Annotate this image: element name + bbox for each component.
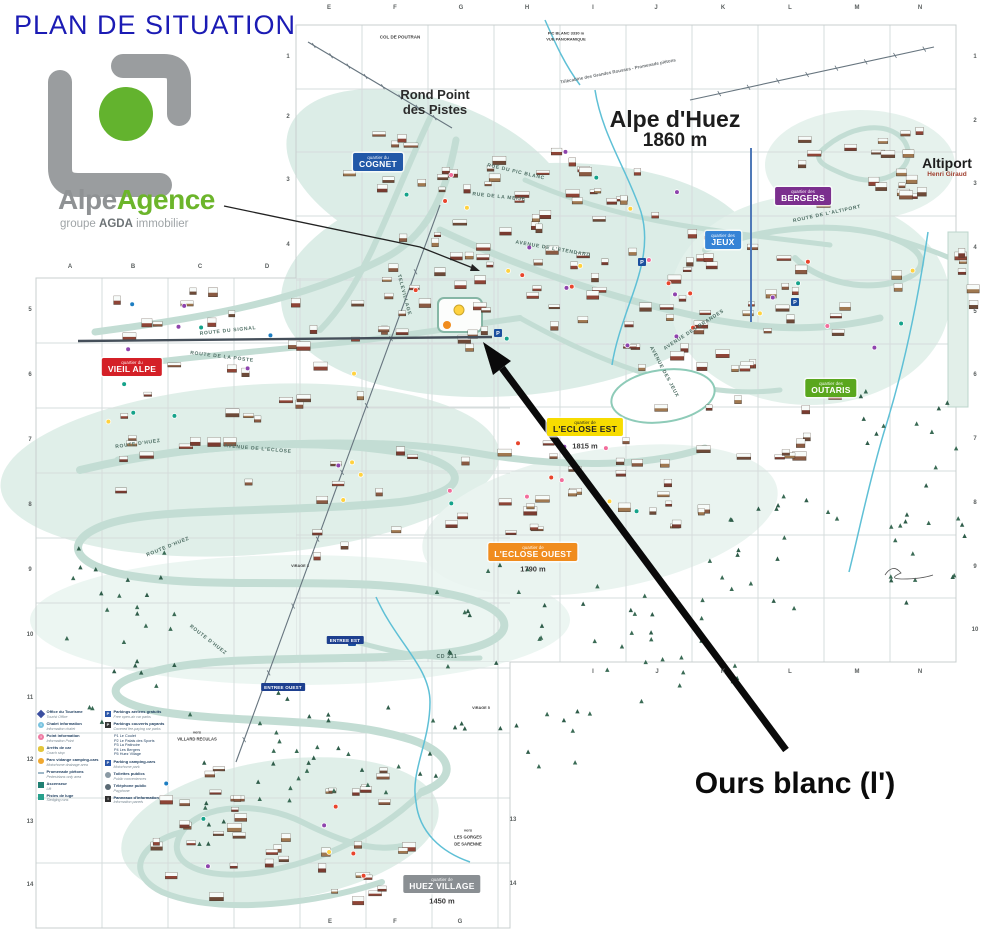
legend-column: Office du TourismeTourist OfficeiChalet …: [38, 710, 100, 808]
place-label: DE SARENNE: [454, 842, 481, 847]
place-label: VIRAGE 5: [472, 706, 490, 710]
ours-blanc-arrowhead: [483, 342, 511, 375]
legend-label-fr: Promenade piétons: [47, 770, 84, 775]
legend-item-text: AscenseurLift: [47, 782, 67, 791]
grid-label: B: [131, 264, 135, 270]
legend-item: Toilettes publicsPublic conveniences: [105, 772, 167, 781]
grid-label: F: [393, 5, 397, 11]
road-label: ROUTE D'HUEZ: [146, 536, 191, 559]
grid-label: 14: [27, 882, 34, 888]
altiport-label: Altiport Henri Giraud: [922, 158, 972, 180]
legend-item-text: Office du TourismeTourist Office: [47, 710, 83, 719]
legend-label-fr: Parc vidange camping-cars: [47, 758, 99, 763]
legend-label-fr: Parking camping-cars: [114, 760, 156, 765]
grid-label: G: [459, 5, 464, 11]
legend-label-en: Public conveniences: [114, 777, 147, 781]
legend-label-en: Information panels: [114, 800, 159, 804]
legend-label-en: Payphone: [114, 789, 147, 793]
legend-label-fr: Toilettes publics: [114, 772, 147, 777]
legend-label-en: Pedestrians only area: [47, 775, 84, 779]
road-label: RUE DE LA MEIJE: [472, 191, 526, 203]
quarter-label-vieil-alpe: quartier du VIEIL ALPE: [102, 358, 162, 376]
legend-item: Parc vidange camping-carsMotorhome drain…: [38, 758, 100, 767]
legend-item: AscenseurLift: [38, 782, 100, 791]
legend-item-text: Toilettes publicsPublic conveniences: [114, 772, 147, 781]
grid-label: N: [918, 669, 922, 675]
grid-label: M: [855, 669, 860, 675]
legend-square-icon: P: [105, 760, 111, 766]
grid-label: 8: [973, 500, 976, 506]
grid-label: I: [592, 669, 594, 675]
legend-item: iPoint informationInformation Point: [38, 734, 100, 743]
legend-square-icon: i: [105, 796, 111, 802]
legend-item-text: Pistes de lugeSledging runs: [47, 794, 74, 803]
quarter-label-eclose-est: quartier de L'ECLOSE EST: [547, 418, 623, 436]
grid-label: 9: [973, 564, 976, 570]
place-label: vers: [193, 730, 201, 735]
grid-label: E: [328, 919, 332, 925]
grid-label: 14: [510, 881, 517, 887]
grid-label: C: [198, 264, 202, 270]
grid-label: 3: [973, 181, 976, 187]
legend-item: Téléphone publicPayphone: [105, 784, 167, 793]
road-label: ROUTE DE LA POSTE: [190, 350, 254, 364]
legend-label-en: Free open-air car parks: [114, 715, 162, 719]
legend-item: PParkings aériens gratuitsFree open-air …: [105, 710, 167, 719]
grid-label: J: [654, 5, 657, 11]
road-label: ROUTE DU SIGNAL: [199, 325, 256, 337]
legend-circle-icon: i: [38, 722, 44, 728]
signature-mark: [885, 568, 933, 579]
grid-label: K: [721, 5, 725, 11]
quarter-label-cognet: quartier du COGNET: [353, 153, 403, 171]
road-label: AVENUE DE L'ECLOSE: [224, 443, 292, 455]
quarter-label-eclose-ouest: quartier de L'ECLOSE OUEST: [488, 543, 577, 561]
altitude-label-huez-village: 1450 m: [429, 897, 454, 906]
legend-square-icon: [38, 794, 44, 800]
grid-label: L: [788, 669, 792, 675]
grid-label: 4: [973, 245, 976, 251]
road-label: TELEVILLAGE: [396, 274, 413, 316]
legend-item-text: Arrêts de carCoach stop: [47, 746, 72, 755]
grid-label: 10: [972, 627, 979, 633]
road-label: RUE DU PIC BLANC: [487, 162, 546, 181]
quarter-label-huez-village: quartier de HUEZ VILLAGE: [403, 875, 480, 893]
legend-label-en: Tourist Office: [47, 715, 83, 719]
lift-cable-line: [78, 337, 492, 341]
entrance-label: ENTREE OUEST: [261, 683, 305, 691]
grid-label: 12: [27, 757, 34, 763]
place-label: VILLARD RECULAS: [177, 737, 217, 742]
road-label: ROUTE D'HUEZ: [115, 438, 161, 450]
place-label: PIC BLANC 3330 m: [548, 31, 584, 36]
legend-label-fr: Ascenseur: [47, 782, 67, 787]
grid-label: M: [855, 5, 860, 11]
map-legend: Office du TourismeTourist OfficeiChalet …: [38, 710, 167, 808]
legend-item-text: Parc vidange camping-carsMotorhome drain…: [47, 758, 99, 767]
road-label: AVENUE DES BRANDES: [663, 308, 726, 352]
legend-label-en: Motorhome drainage area: [47, 763, 99, 767]
legend-label-en: Information chalet: [47, 727, 82, 731]
legend-item-text: Point informationInformation Point: [47, 734, 80, 743]
legend-item: PParkings couverts payantsCovered fee-pa…: [105, 722, 167, 731]
road-label: CD 211: [437, 654, 458, 660]
legend-item-text: Parkings couverts payantsCovered fee-pay…: [114, 722, 165, 731]
legend-label-en: Sledging runs: [47, 798, 74, 802]
legend-dash-icon: [38, 772, 44, 774]
legend-label-fr: Point information: [47, 734, 80, 739]
ours-blanc-annotation: Ours blanc (l'): [695, 767, 896, 801]
grid-label: 2: [286, 114, 289, 120]
legend-item: Office du TourismeTourist Office: [38, 710, 100, 719]
grid-label: 10: [27, 632, 34, 638]
place-label: vers: [464, 828, 472, 833]
place-label: Télécabine des Grandes Rousses - Promena…: [560, 57, 676, 84]
grid-label: F: [393, 919, 397, 925]
legend-square-icon: P: [105, 722, 111, 728]
grid-label: J: [655, 669, 658, 675]
ski-lift-lines: [236, 42, 934, 762]
altitude-label-eclose-ouest: 1790 m: [520, 565, 545, 574]
legend-item: iChalet informationInformation chalet: [38, 722, 100, 731]
grid-label: D: [265, 264, 269, 270]
legend-item-text: Chalet informationInformation chalet: [47, 722, 82, 731]
legend-item-text: Panneaux d'informationInformation panels: [114, 796, 159, 805]
legend-item-text: Promenade piétonsPedestrians only area: [47, 770, 84, 779]
grid-label: 6: [973, 372, 976, 378]
legend-parking-item: P5 Huez Village: [114, 752, 167, 757]
legend-column: PParkings aériens gratuitsFree open-air …: [105, 710, 167, 808]
road-label: AVENUE DES JEUX: [648, 345, 680, 398]
grid-label: K: [721, 669, 725, 675]
road-label: ROUTE DE L'ALTIPORT: [792, 204, 861, 224]
grid-label: 13: [27, 819, 34, 825]
place-label: VUE PANORAMIQUE: [546, 37, 585, 42]
svg-text:P: P: [640, 260, 644, 266]
legend-parking-list: P1 Le CouletP2 Le Palais des SportsP3 La…: [114, 734, 167, 757]
grid-label: 11: [27, 695, 33, 701]
legend-label-fr: Office du Tourisme: [47, 710, 83, 715]
quarter-label-outaris: quartier des OUTARIS: [805, 379, 856, 397]
svg-text:P: P: [793, 300, 797, 306]
plan-de-situation: PPPP PLAN DE SITUATION AlpeAgence groupe…: [0, 0, 1000, 932]
legend-label-fr: Téléphone public: [114, 784, 147, 789]
legend-dot-icon: [105, 784, 111, 790]
grid-label: 9: [28, 567, 31, 573]
logo-tagline: groupe AGDA immobilier: [60, 218, 188, 230]
grid-label: 7: [973, 436, 976, 442]
grid-label: 5: [973, 309, 976, 315]
grid-label: I: [592, 5, 594, 11]
grid-label: 6: [28, 372, 31, 378]
grid-label: 1: [286, 54, 289, 60]
grid-label: G: [458, 919, 463, 925]
legend-item-text: Téléphone publicPayphone: [114, 784, 147, 793]
grid-label: 2: [973, 118, 976, 124]
legend-square-icon: [38, 782, 44, 788]
map-landmarks: PPPP: [348, 232, 968, 646]
resort-name-label: Alpe d'Huez 1860 m: [610, 108, 741, 152]
rond-point-des-pistes-label: Rond Point des Pistes: [400, 87, 469, 117]
place-label: LES GORGES: [454, 835, 482, 840]
legend-label-en: Information Point: [47, 739, 80, 743]
grid-label: 8: [28, 502, 31, 508]
legend-label-en: Motorhome park: [114, 765, 156, 769]
logo-wordmark: AlpeAgence: [58, 184, 215, 216]
legend-item-text: Parking camping-carsMotorhome park: [114, 760, 156, 769]
legend-item: Promenade piétonsPedestrians only area: [38, 770, 100, 779]
legend-label-fr: Arrêts de car: [47, 746, 72, 751]
legend-label-en: Coach stop: [47, 751, 72, 755]
legend-item: iPanneaux d'informationInformation panel…: [105, 796, 167, 805]
grid-label: N: [918, 5, 922, 11]
altitude-label-eclose-est: 1815 m: [572, 442, 597, 451]
legend-item: Pistes de lugeSledging runs: [38, 794, 100, 803]
legend-item: PParking camping-carsMotorhome park: [105, 760, 167, 769]
legend-label-en: Covered fee-paying car parks: [114, 727, 165, 731]
legend-label-fr: Parkings couverts payants: [114, 722, 165, 727]
entrance-label: ENTREE EST: [327, 636, 364, 644]
legend-dot-icon: [105, 772, 111, 778]
legend-circle-icon: i: [38, 734, 44, 740]
grid-label: 4: [286, 242, 289, 248]
grid-label: H: [525, 5, 529, 11]
grid-label: 13: [510, 817, 517, 823]
legend-item: Arrêts de carCoach stop: [38, 746, 100, 755]
quarter-label-bergers: quartier des BERGERS: [775, 187, 831, 205]
legend-oval-icon: [38, 746, 44, 752]
road-label: ROUTE D'HUEZ: [188, 624, 228, 657]
callout-arrowhead: [470, 264, 480, 271]
quarter-label-jeux: quartier des JEUX: [705, 231, 741, 249]
place-label: VIRAGE 3: [291, 564, 309, 568]
road-label: AVENUE DE L'ETENDARD: [515, 239, 591, 258]
grid-label: E: [327, 5, 331, 11]
legend-diamond-icon: [37, 709, 45, 717]
legend-label-fr: Chalet information: [47, 722, 82, 727]
grid-label: L: [788, 5, 792, 11]
page-title: PLAN DE SITUATION: [14, 10, 296, 41]
grid-label: A: [68, 264, 72, 270]
grid-label: 1: [973, 54, 976, 60]
grid-label: 3: [286, 177, 289, 183]
svg-text:P: P: [496, 331, 500, 337]
callout-line: [224, 206, 473, 268]
legend-item-text: Parkings aériens gratuitsFree open-air c…: [114, 710, 162, 719]
alpe-agence-logo: AlpeAgence groupe AGDA immobilier: [48, 52, 228, 242]
legend-dot-icon: [38, 758, 44, 764]
legend-label-fr: Parkings aériens gratuits: [114, 710, 162, 715]
place-label: COL DE POUTRAN: [380, 35, 420, 40]
legend-square-icon: P: [105, 711, 111, 717]
grid-label: 7: [28, 437, 31, 443]
grid-label: 5: [28, 307, 31, 313]
legend-label-en: Lift: [47, 787, 67, 791]
